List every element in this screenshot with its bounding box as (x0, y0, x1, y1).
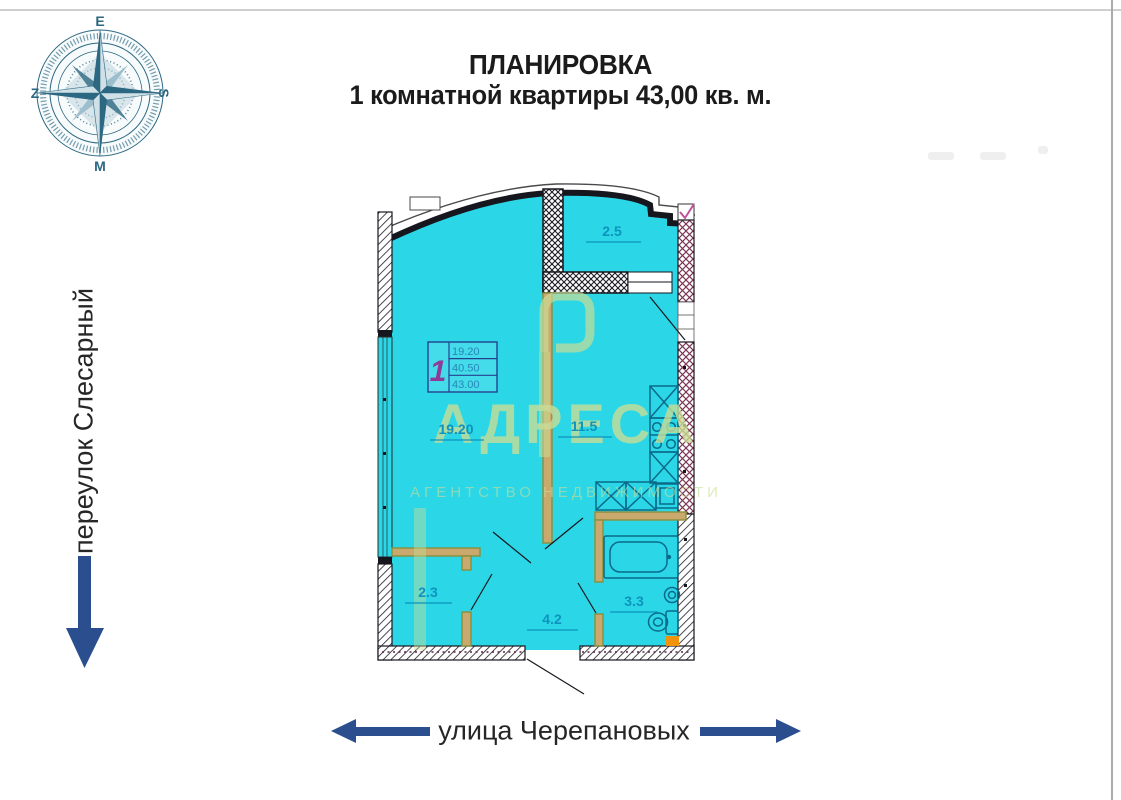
plan-scene: E S M Z (0, 0, 1121, 800)
compass-letter-top: E (95, 13, 104, 29)
apartment-plan: АДРЕСА АГЕНТСТВО НЕДВИЖИМОСТИ 1 19.20 40… (378, 184, 722, 694)
room-label-hallway: 4.2 (542, 611, 562, 627)
left-window (378, 337, 392, 557)
arrow-left-icon (331, 719, 430, 743)
info-row-area: 40.50 (452, 363, 480, 375)
room-label-balcony: 2.5 (602, 223, 622, 239)
balcony-sill-box (628, 272, 672, 282)
watermark-tagline: АГЕНТСТВО НЕДВИЖИМОСТИ (410, 484, 722, 501)
room-label-bathroom: 3.3 (624, 593, 644, 609)
faint-smudges (928, 146, 1048, 160)
floorplan-page: ПЛАНИРОВКА 1 комнатной квартиры 43,00 кв… (0, 0, 1121, 800)
entrance-door-swing (527, 659, 584, 694)
water-heater-icon (666, 636, 679, 646)
arch-step-detail (410, 197, 440, 210)
balcony-sill-box (628, 282, 672, 293)
info-row-total: 43.00 (452, 379, 480, 391)
balcony-window-block (543, 272, 628, 293)
apartment-info-box: 1 19.20 40.50 43.00 (428, 342, 497, 392)
balcony-door-opening (678, 302, 694, 342)
compass-rose-icon: E S M Z (31, 13, 172, 174)
flat-number: 1 (430, 355, 447, 388)
compass-letter-left: Z (31, 85, 40, 101)
room-label-living: 19.20 (438, 421, 473, 437)
room-label-wardrobe: 2.3 (418, 584, 438, 600)
info-row-living: 19.20 (452, 346, 480, 358)
left-wall (378, 212, 392, 660)
compass-letter-right: S (156, 88, 172, 97)
arrow-right-icon (700, 719, 801, 743)
compass-letter-bottom: M (94, 158, 106, 174)
room-label-kitchen: 11.5 (571, 418, 598, 434)
arrow-down-icon (66, 556, 104, 668)
